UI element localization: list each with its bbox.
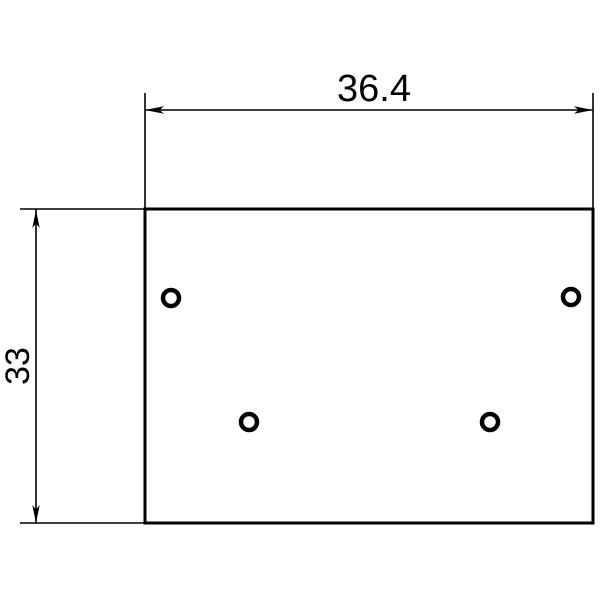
- hole-bottom-right: [482, 414, 498, 430]
- plate-outline: [145, 209, 593, 523]
- hole-top-left: [163, 290, 179, 306]
- technical-drawing: 36.4 33: [0, 0, 600, 600]
- drawing-canvas: 36.4 33: [0, 0, 600, 600]
- width-dimension-value: 36.4: [337, 68, 411, 110]
- hole-top-right: [563, 289, 579, 305]
- hole-bottom-left: [241, 414, 257, 430]
- height-dimension-value: 33: [0, 347, 37, 385]
